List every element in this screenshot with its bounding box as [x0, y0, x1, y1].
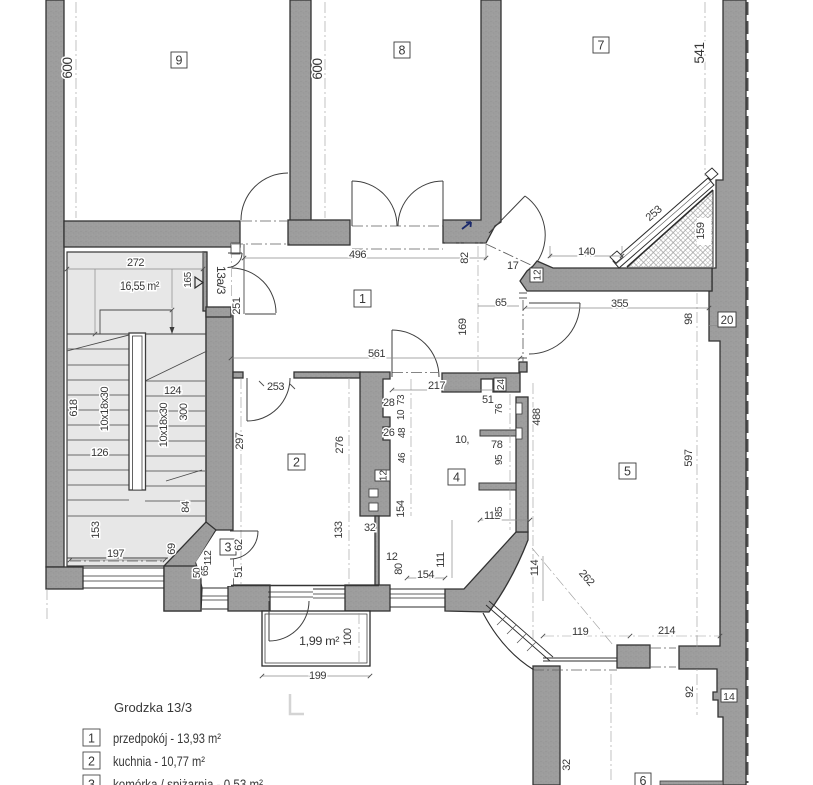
svg-text:488: 488	[531, 408, 543, 425]
svg-text:561: 561	[368, 348, 385, 360]
svg-text:76: 76	[494, 403, 505, 414]
svg-text:28: 28	[383, 397, 395, 409]
svg-text:10: 10	[396, 409, 407, 420]
svg-text:159: 159	[695, 222, 707, 239]
svg-text:kuchnia - 10,77 m²: kuchnia - 10,77 m²	[113, 754, 205, 769]
svg-text:24: 24	[496, 379, 507, 391]
svg-text:16,55 m²: 16,55 m²	[120, 279, 159, 293]
svg-text:84: 84	[180, 501, 192, 513]
svg-text:14: 14	[723, 691, 735, 703]
svg-text:48: 48	[397, 427, 408, 438]
svg-text:69: 69	[166, 543, 178, 555]
svg-text:85: 85	[494, 506, 505, 517]
svg-text:4: 4	[453, 471, 460, 485]
svg-text:214: 214	[658, 625, 675, 637]
svg-text:3: 3	[225, 541, 232, 555]
svg-text:197: 197	[107, 548, 124, 560]
svg-text:154: 154	[417, 569, 434, 581]
svg-text:276: 276	[334, 436, 346, 453]
svg-text:8: 8	[399, 44, 406, 58]
svg-text:92: 92	[684, 686, 696, 698]
svg-text:597: 597	[683, 449, 695, 466]
svg-text:98: 98	[683, 313, 695, 325]
svg-text:154: 154	[395, 500, 407, 517]
svg-text:496: 496	[349, 249, 366, 261]
svg-text:10x18x30: 10x18x30	[99, 386, 111, 431]
svg-text:100: 100	[342, 628, 354, 645]
svg-text:95: 95	[494, 454, 505, 465]
svg-text:7: 7	[598, 39, 605, 53]
svg-text:112: 112	[203, 550, 214, 566]
svg-text:600: 600	[310, 58, 325, 79]
svg-text:komórka / spiżarnia - 0,53 m²: komórka / spiżarnia - 0,53 m²	[113, 777, 263, 785]
svg-text:5: 5	[624, 465, 631, 479]
svg-text:82: 82	[459, 252, 471, 264]
svg-text:12: 12	[533, 269, 544, 281]
svg-text:600: 600	[60, 57, 75, 78]
svg-text:80: 80	[393, 563, 405, 575]
svg-text:1: 1	[88, 732, 95, 746]
svg-text:20: 20	[721, 315, 734, 327]
svg-text:217: 217	[428, 380, 445, 392]
svg-text:300: 300	[178, 403, 190, 420]
svg-text:114: 114	[529, 560, 541, 577]
svg-text:6: 6	[640, 774, 647, 785]
svg-text:355: 355	[611, 298, 628, 310]
svg-text:618: 618	[68, 399, 80, 416]
svg-text:165: 165	[183, 271, 194, 287]
svg-text:3: 3	[88, 778, 95, 785]
svg-text:46: 46	[397, 452, 408, 463]
svg-text:73: 73	[396, 394, 407, 405]
svg-text:253: 253	[267, 381, 284, 393]
svg-text:541: 541	[692, 42, 707, 63]
svg-text:126: 126	[91, 447, 108, 459]
svg-text:297: 297	[234, 432, 246, 449]
svg-text:65: 65	[200, 565, 211, 576]
svg-text:12: 12	[379, 470, 390, 482]
svg-text:51: 51	[233, 566, 245, 578]
svg-text:78: 78	[491, 439, 503, 451]
svg-text:32: 32	[364, 522, 376, 534]
svg-text:17: 17	[507, 260, 519, 272]
svg-text:26: 26	[383, 427, 395, 439]
svg-text:140: 140	[578, 246, 595, 258]
svg-text:9: 9	[176, 54, 183, 68]
svg-text:10x18x30: 10x18x30	[158, 402, 170, 447]
svg-text:153: 153	[90, 521, 102, 538]
svg-text:1: 1	[359, 292, 366, 306]
svg-text:32: 32	[561, 759, 573, 771]
svg-text:251: 251	[231, 297, 243, 314]
svg-text:111: 111	[435, 552, 447, 568]
svg-text:199: 199	[309, 670, 326, 682]
svg-text:10,: 10,	[455, 434, 469, 446]
svg-text:13a/3: 13a/3	[214, 266, 228, 295]
svg-text:51: 51	[482, 394, 494, 406]
svg-text:62: 62	[233, 539, 245, 551]
svg-text:65: 65	[495, 297, 507, 309]
svg-text:133: 133	[333, 521, 345, 538]
svg-text:1,99 m²: 1,99 m²	[299, 634, 339, 648]
svg-text:2: 2	[88, 755, 95, 769]
svg-text:Grodzka 13/3: Grodzka 13/3	[114, 700, 192, 715]
svg-text:przedpokój - 13,93 m²: przedpokój - 13,93 m²	[113, 731, 221, 746]
svg-text:2: 2	[293, 456, 300, 470]
svg-text:169: 169	[457, 318, 469, 335]
svg-text:119: 119	[572, 626, 589, 638]
svg-text:272: 272	[127, 257, 144, 269]
svg-text:12: 12	[386, 551, 398, 563]
svg-text:124: 124	[164, 385, 181, 397]
